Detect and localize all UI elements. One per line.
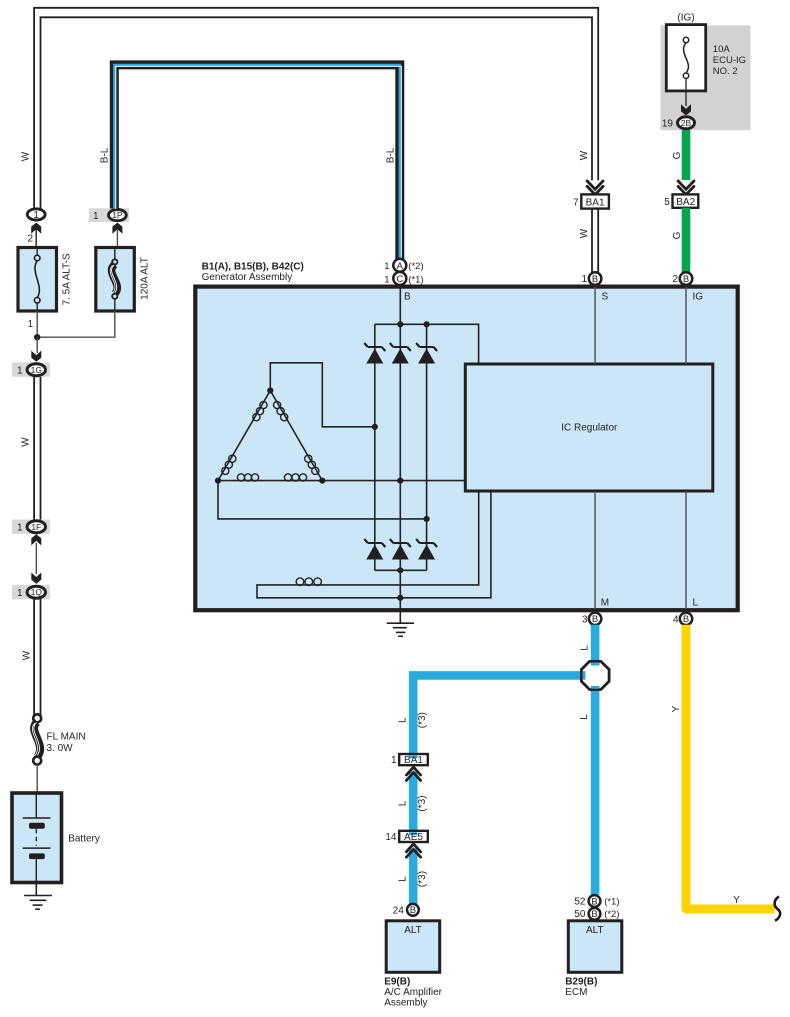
svg-text:Generator Assembly: Generator Assembly <box>202 272 293 283</box>
svg-text:(*1): (*1) <box>604 896 619 907</box>
svg-text:W: W <box>21 437 32 447</box>
svg-text:BA1: BA1 <box>404 755 423 766</box>
svg-text:Y: Y <box>733 895 740 906</box>
svg-text:E9(B): E9(B) <box>384 977 410 988</box>
svg-text:120A ALT: 120A ALT <box>140 257 151 300</box>
svg-text:W: W <box>21 151 32 161</box>
svg-text:W: W <box>579 228 590 238</box>
svg-text:ECM: ECM <box>565 987 587 998</box>
svg-text:50: 50 <box>574 909 586 920</box>
svg-text:Y: Y <box>671 705 682 712</box>
svg-text:2: 2 <box>27 234 33 245</box>
svg-text:A: A <box>397 261 404 272</box>
svg-text:B: B <box>404 292 411 303</box>
svg-text:B: B <box>683 614 689 625</box>
svg-text:B-L: B-L <box>386 147 397 163</box>
svg-text:14: 14 <box>385 832 397 843</box>
svg-text:IC Regulator: IC Regulator <box>561 423 618 434</box>
svg-text:BA1: BA1 <box>586 197 605 208</box>
svg-text:1: 1 <box>17 366 23 377</box>
svg-text:5: 5 <box>664 197 670 208</box>
svg-text:1G: 1G <box>31 365 42 375</box>
svg-text:L: L <box>397 717 408 723</box>
svg-text:4: 4 <box>673 615 679 626</box>
svg-text:3: 3 <box>582 615 588 626</box>
svg-text:Battery: Battery <box>68 834 100 845</box>
svg-text:7. 5A ALT-S: 7. 5A ALT-S <box>62 253 73 305</box>
svg-text:IG: IG <box>693 292 704 303</box>
svg-text:AE5: AE5 <box>404 832 423 843</box>
svg-text:(*2): (*2) <box>604 909 619 920</box>
svg-text:G: G <box>672 231 683 239</box>
svg-text:L: L <box>397 800 408 806</box>
svg-text:1: 1 <box>17 588 23 599</box>
svg-text:24: 24 <box>393 905 405 916</box>
svg-text:1: 1 <box>17 523 23 534</box>
svg-text:Assembly: Assembly <box>384 998 427 1009</box>
svg-text:1: 1 <box>93 211 99 222</box>
svg-text:1Q: 1Q <box>31 587 43 597</box>
svg-text:W: W <box>22 650 33 660</box>
svg-text:L: L <box>580 645 591 651</box>
svg-text:1P: 1P <box>112 210 123 220</box>
svg-text:(*3): (*3) <box>417 712 428 728</box>
svg-text:19: 19 <box>662 119 674 130</box>
svg-text:B: B <box>592 274 598 285</box>
svg-text:1: 1 <box>384 274 389 285</box>
svg-text:L: L <box>693 598 699 609</box>
svg-text:1: 1 <box>33 210 39 221</box>
svg-text:M: M <box>601 598 609 609</box>
svg-text:(*3): (*3) <box>417 871 428 887</box>
svg-text:ALT: ALT <box>586 925 604 936</box>
svg-text:L: L <box>397 876 408 882</box>
svg-text:(*3): (*3) <box>417 795 428 811</box>
svg-text:1F: 1F <box>31 522 41 532</box>
svg-text:7: 7 <box>573 197 579 208</box>
svg-text:A/C Amplifier: A/C Amplifier <box>384 987 442 998</box>
svg-text:2B: 2B <box>681 118 692 128</box>
svg-text:(*2): (*2) <box>408 261 423 272</box>
svg-text:1: 1 <box>384 261 389 272</box>
svg-text:B29(B): B29(B) <box>565 977 597 988</box>
svg-text:B: B <box>591 909 597 920</box>
svg-text:(*1): (*1) <box>408 275 423 286</box>
svg-text:W: W <box>579 150 590 160</box>
svg-text:S: S <box>602 292 609 303</box>
svg-text:B: B <box>592 614 598 625</box>
svg-text:(IG): (IG) <box>677 13 694 24</box>
svg-text:B: B <box>683 274 689 285</box>
svg-text:1: 1 <box>391 755 397 766</box>
svg-text:3. 0W: 3. 0W <box>47 743 74 754</box>
svg-text:1: 1 <box>28 319 34 330</box>
svg-text:10A: 10A <box>713 44 731 55</box>
svg-text:ECU-IG: ECU-IG <box>713 55 746 66</box>
svg-text:B: B <box>591 896 597 907</box>
svg-text:B: B <box>410 905 416 916</box>
svg-text:B1(A), B15(B), B42(C): B1(A), B15(B), B42(C) <box>202 262 304 273</box>
svg-text:BA2: BA2 <box>676 197 695 208</box>
svg-text:ALT: ALT <box>404 925 422 936</box>
svg-text:1: 1 <box>581 274 587 285</box>
svg-text:G: G <box>672 151 683 159</box>
svg-text:C: C <box>396 274 403 285</box>
svg-text:FL MAIN: FL MAIN <box>47 732 86 743</box>
svg-text:L: L <box>579 714 590 720</box>
svg-text:2: 2 <box>672 274 678 285</box>
svg-text:B-L: B-L <box>100 147 111 163</box>
svg-text:NO. 2: NO. 2 <box>713 66 738 77</box>
svg-text:52: 52 <box>574 896 586 907</box>
